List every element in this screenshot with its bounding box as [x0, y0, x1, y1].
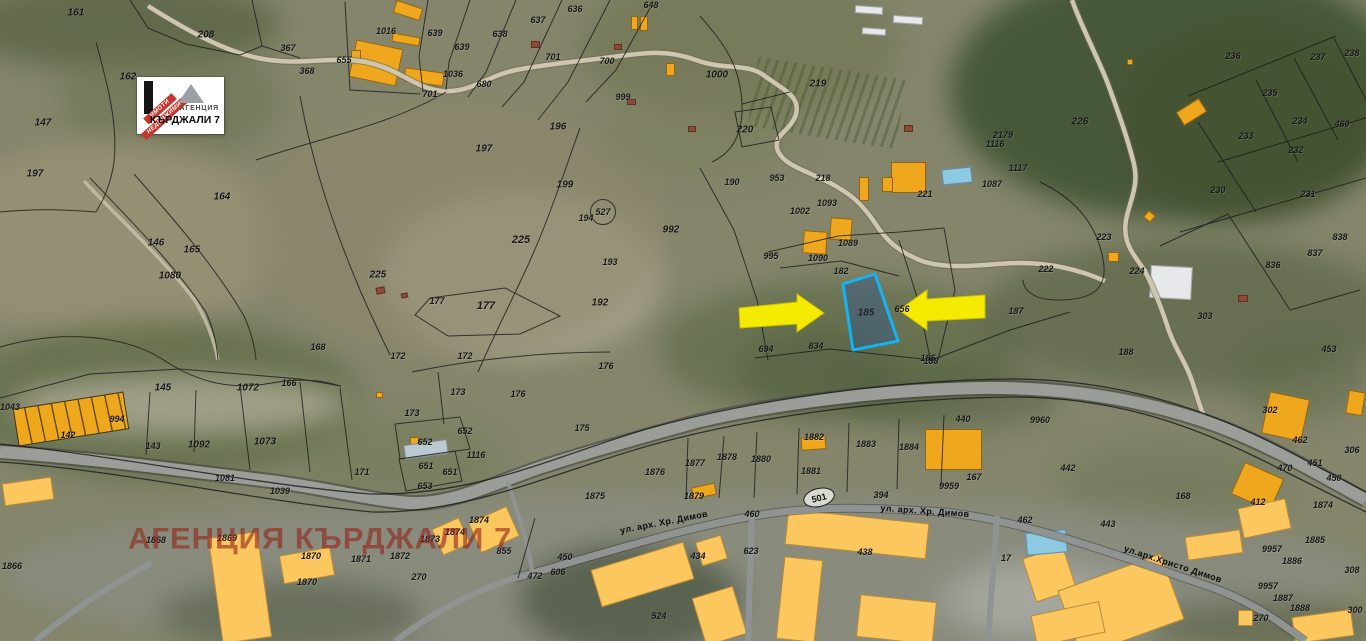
logo-roof-triangle [178, 84, 204, 103]
parcel-number: 1874 [1313, 500, 1333, 510]
street-name-label: ул. арх. Хр. Димов [880, 503, 970, 519]
parcel-number: 176 [510, 389, 525, 399]
parcel-number: 187 [1008, 306, 1023, 316]
parcel-number: 652 [417, 437, 432, 447]
parcel-number: 231 [1300, 189, 1315, 199]
agency-logo: ИМОТИ НЕДВИЖИМИ АГЕНЦИЯ КЪРДЖАЛИ 7 [137, 77, 224, 134]
parcel-number: 367 [280, 43, 295, 53]
parcel-number: 225 [512, 234, 530, 246]
parcel-number: 196 [550, 122, 567, 133]
parcel-number: 222 [1038, 264, 1053, 274]
parcel-number: 197 [476, 144, 493, 155]
parcel-number: 524 [651, 611, 666, 621]
parcel-number: 232 [1288, 145, 1303, 155]
parcel-number: 223 [1096, 232, 1111, 242]
parcel-number: 1876 [645, 467, 665, 477]
parcel-number: 623 [743, 546, 758, 556]
parcel-number: 1090 [808, 253, 828, 263]
parcel-number: 1016 [376, 26, 396, 36]
parcel-number: 1073 [254, 437, 276, 448]
parcel-number: 190 [724, 177, 739, 187]
parcel-number: 438 [857, 547, 872, 557]
parcel-number: 1884 [899, 442, 919, 452]
parcel-number: 146 [148, 238, 165, 249]
parcel-number: 953 [769, 173, 784, 183]
parcel-number: 1092 [188, 440, 210, 451]
parcel-number: 1878 [717, 452, 737, 462]
parcel-number: 224 [1129, 266, 1144, 276]
parcel-number: 302 [1262, 405, 1277, 415]
parcel-number: 218 [815, 173, 830, 183]
parcel-number: 168 [1175, 491, 1190, 501]
parcel-number: 450 [1326, 473, 1341, 483]
parcel-number: 1885 [1305, 535, 1325, 545]
parcel-number: 450 [557, 552, 572, 562]
parcel-number: 308 [1344, 565, 1359, 575]
parcel-number: 177 [477, 300, 495, 312]
parcel-number: 238 [1344, 48, 1359, 58]
parcel-number: 175 [574, 423, 589, 433]
watermark-text: АГЕНЦИЯ КЪРДЖАЛИ 7 [128, 522, 512, 556]
parcel-number: 1093 [817, 198, 837, 208]
parcel-number: 145 [155, 383, 172, 394]
parcel-number: 694 [758, 344, 773, 354]
parcel-number: 460 [1334, 119, 1349, 129]
parcel-number: 680 [476, 79, 491, 89]
route-number: 501 [810, 491, 827, 504]
parcel-number: 188 [1118, 347, 1133, 357]
parcel-number: 17 [1001, 553, 1011, 563]
parcel-number: 230 [1210, 185, 1225, 195]
parcel-number: 197 [27, 169, 44, 180]
parcel-number: 394 [873, 490, 888, 500]
parcel-number: 226 [1072, 117, 1089, 128]
parcel-number: 192 [592, 298, 609, 309]
parcel-number: 639 [454, 42, 469, 52]
parcel-number: 1036 [443, 69, 463, 79]
parcel-number: 173 [450, 387, 465, 397]
parcel-number: 300 [1347, 605, 1362, 615]
parcel-number: 700 [599, 56, 614, 66]
parcel-number: 460 [744, 509, 759, 519]
parcel-number: 166 [281, 378, 296, 388]
parcel-number: 208 [198, 30, 215, 41]
parcel-number: 193 [602, 257, 617, 267]
parcel-number: 194 [578, 213, 593, 223]
parcel-number: 1887 [1273, 593, 1293, 603]
parcel-number: 606 [550, 567, 565, 577]
parcel-number: 171 [354, 467, 369, 477]
parcel-number: 834 [808, 341, 823, 351]
parcel-number: 173 [404, 408, 419, 418]
parcel-number: 167 [966, 472, 981, 482]
parcel-number: 225 [370, 270, 387, 281]
parcel-number: 527 [595, 207, 610, 217]
parcel-number: 1866 [2, 561, 22, 571]
parcel-number: 1883 [856, 439, 876, 449]
logo-black-bar [144, 81, 153, 114]
parcel-number: 1117 [1009, 163, 1028, 173]
parcel-number: 434 [690, 551, 705, 561]
highlighted-parcel-number: 185 [858, 308, 875, 319]
parcel-number: 270 [1253, 613, 1268, 623]
parcel-number: 701 [422, 89, 437, 99]
parcel-number: 1000 [706, 70, 728, 81]
street-name-label: ул. арх. Хр. Димов [619, 509, 708, 536]
parcel-number: 656 [894, 304, 909, 314]
parcel-number: 639 [427, 28, 442, 38]
parcel-number: 9959 [939, 481, 959, 491]
parcel-number: 161 [68, 8, 85, 19]
parcel-number: 147 [35, 118, 52, 129]
parcel-number: 651 [418, 461, 433, 471]
parcel-number: 165 [184, 245, 201, 256]
parcel-number: 453 [1321, 344, 1336, 354]
parcel-number: 1087 [982, 179, 1002, 189]
parcel-number: 1072 [237, 383, 259, 394]
parcel-number: 219 [810, 79, 827, 90]
parcel-number: 221 [917, 189, 932, 199]
parcel-number: 1888 [1290, 603, 1310, 613]
parcel-number: 638 [492, 29, 507, 39]
parcel-number: 220 [737, 125, 754, 136]
parcel-number: 838 [1332, 232, 1347, 242]
parcel-number: 1881 [801, 466, 821, 476]
parcel-number: 236 [1225, 51, 1240, 61]
parcel-number: 142 [60, 430, 75, 440]
parcel-number: 992 [663, 225, 680, 236]
parcel-number: 636 [567, 4, 582, 14]
parcel-number: 168 [310, 342, 325, 352]
parcel-number: 655 [336, 55, 351, 65]
parcel-number: 172 [457, 351, 472, 361]
parcel-number: 306 [1344, 445, 1359, 455]
parcel-number: 1080 [159, 271, 181, 282]
parcel-number: 1870 [297, 577, 317, 587]
parcel-number: 177 [429, 296, 444, 306]
parcel-number: 1043 [0, 402, 20, 412]
parcel-number: 303 [1197, 311, 1212, 321]
parcel-number: 637 [530, 15, 545, 25]
parcel-number: 237 [1310, 52, 1325, 62]
parcel-number: 9957 [1258, 581, 1278, 591]
parcel-number: 1116 [986, 139, 1005, 149]
parcel-number: 470 [1277, 463, 1292, 473]
parcel-number: 176 [598, 361, 613, 371]
parcel-number: 472 [527, 571, 542, 581]
parcel-number: 999 [615, 92, 630, 102]
parcel-number: 837 [1307, 248, 1322, 258]
parcel-number: 442 [1060, 463, 1075, 473]
parcel-number: 440 [955, 414, 970, 424]
parcel-number: 1875 [585, 491, 605, 501]
parcel-number: 234 [1292, 116, 1307, 126]
parcel-number: 462 [1017, 515, 1032, 525]
parcel-number: 1002 [790, 206, 810, 216]
logo-agency-word: АГЕНЦИЯ [179, 105, 219, 112]
parcel-number: 235 [1262, 88, 1277, 98]
parcel-number: 994 [109, 414, 124, 424]
parcel-number: 143 [145, 441, 160, 451]
parcel-number: 1880 [751, 454, 771, 464]
logo-agency-name: КЪРДЖАЛИ 7 [150, 114, 220, 126]
parcel-number: 648 [643, 0, 658, 10]
street-name-label: ул.арх.Христо Димов [1123, 543, 1224, 584]
parcel-number: 462 [1292, 435, 1307, 445]
parcel-number: 162 [120, 72, 137, 83]
parcel-number: 412 [1250, 497, 1265, 507]
parcel-number: 701 [545, 52, 560, 62]
parcel-number: 1882 [804, 432, 824, 442]
parcel-number: 653 [417, 481, 432, 491]
parcel-number: 1039 [270, 486, 290, 496]
parcel-number: 1886 [1282, 556, 1302, 566]
parcel-number: 1879 [684, 491, 704, 501]
parcel-number: 1081 [215, 473, 235, 483]
satellite-map[interactable]: 1612083673681621471971461641651080168225… [0, 0, 1366, 641]
parcel-number: 172 [390, 351, 405, 361]
parcel-number: 1089 [838, 238, 858, 248]
parcel-number: 443 [1100, 519, 1115, 529]
parcel-number: 270 [411, 572, 426, 582]
parcel-number: 1877 [685, 458, 705, 468]
parcel-number: 1116 [467, 450, 486, 460]
parcel-number: 652 [457, 426, 472, 436]
parcel-number: 182 [833, 266, 848, 276]
parcel-number: 836 [1265, 260, 1280, 270]
parcel-number: 164 [214, 192, 231, 203]
parcel-number: 9960 [1030, 415, 1050, 425]
parcel-number: 995 [763, 251, 778, 261]
parcel-number: 451 [1307, 458, 1322, 468]
parcel-number: 188 [923, 356, 938, 366]
parcel-number: 233 [1238, 131, 1253, 141]
parcel-number: 368 [299, 66, 314, 76]
parcel-number: 199 [557, 180, 574, 191]
parcel-number: 651 [442, 467, 457, 477]
parcel-number: 9957 [1262, 544, 1282, 554]
